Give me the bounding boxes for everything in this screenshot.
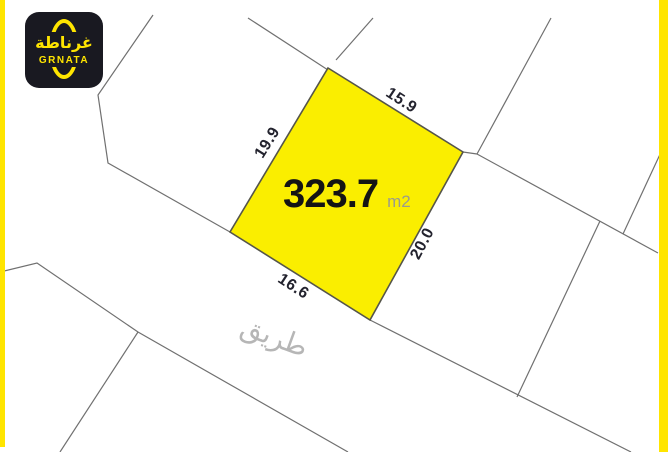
left-parcel-boundary — [98, 15, 230, 232]
top-right-parcel-divider — [336, 18, 373, 60]
right-road-parallel-line — [477, 154, 658, 253]
plot-area-unit: m2 — [387, 192, 411, 212]
right-lower-parcel-divider — [517, 221, 600, 397]
logo-arabic-text: غرناطة — [25, 32, 103, 54]
far-right-parcel-divider — [623, 150, 662, 234]
top-parcel-divider — [248, 18, 328, 70]
plot-area-label: 323.7 m2 — [283, 174, 411, 214]
grnata-logo: غرناطة GRNATA — [25, 12, 103, 88]
frame-right-border — [659, 0, 668, 452]
land-listing-image: 323.7 m2 15.9 19.9 20.0 16.6 طريق غرناطة… — [0, 0, 668, 452]
logo-latin-text: GRNATA — [25, 54, 103, 67]
lower-parcel-divider — [60, 332, 138, 452]
plot-area-value: 323.7 — [283, 174, 378, 214]
right-parcel-divider — [477, 18, 551, 154]
frame-left-border — [0, 0, 5, 447]
road-upper-edge — [370, 320, 631, 452]
corner-connector-line — [463, 152, 477, 154]
